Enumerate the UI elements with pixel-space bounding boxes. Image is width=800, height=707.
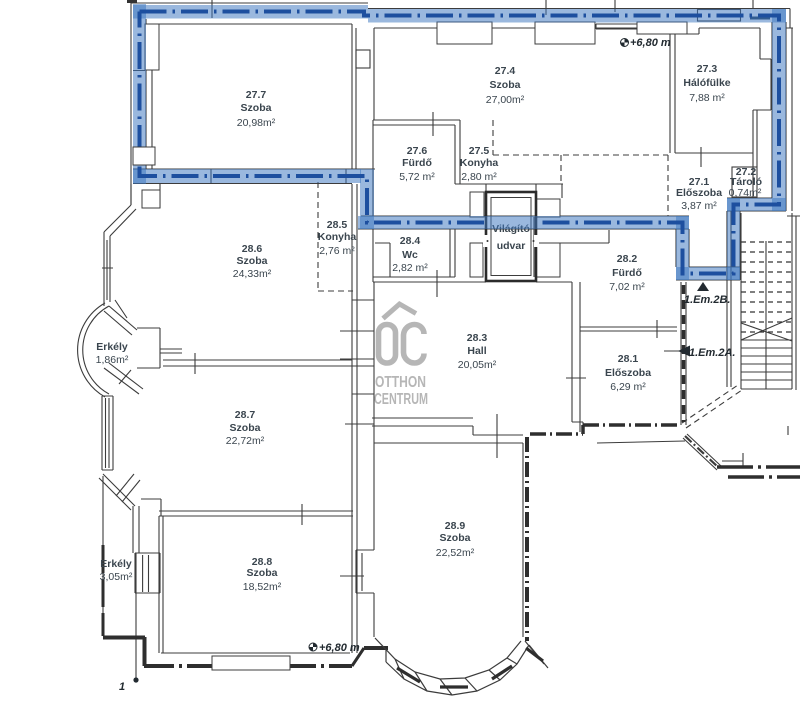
svg-text:Wc: Wc <box>402 249 418 261</box>
svg-text:2,76 m²: 2,76 m² <box>319 245 355 257</box>
svg-text:Fürdő: Fürdő <box>612 267 642 279</box>
svg-text:3,05m²: 3,05m² <box>100 571 133 583</box>
svg-text:1: 1 <box>119 681 125 693</box>
svg-text:Hálófülke: Hálófülke <box>683 77 730 89</box>
svg-text:27.7: 27.7 <box>246 89 267 101</box>
svg-text:27.3: 27.3 <box>697 63 718 75</box>
svg-text:OTTHON: OTTHON <box>375 374 426 391</box>
svg-text:6,29 m²: 6,29 m² <box>610 381 646 393</box>
svg-text:18,52m²: 18,52m² <box>243 581 282 593</box>
svg-text:Szoba: Szoba <box>237 255 268 267</box>
svg-text:24,33m²: 24,33m² <box>233 268 272 280</box>
svg-text:Szoba: Szoba <box>247 567 278 579</box>
svg-text:3,87 m²: 3,87 m² <box>681 200 717 212</box>
svg-text:Szoba: Szoba <box>490 79 521 91</box>
svg-text:CENTRUM: CENTRUM <box>374 391 428 408</box>
svg-text:27.5: 27.5 <box>469 145 490 157</box>
svg-text:Fürdő: Fürdő <box>402 157 432 169</box>
svg-text:1,86m²: 1,86m² <box>96 354 129 366</box>
svg-text:+6,80 m: +6,80 m <box>630 37 671 49</box>
svg-text:Erkély: Erkély <box>96 341 128 353</box>
svg-text:Előszoba: Előszoba <box>676 187 722 199</box>
svg-text:Konyha: Konyha <box>318 231 357 243</box>
svg-text:Előszoba: Előszoba <box>605 367 651 379</box>
svg-text:+6,80 m: +6,80 m <box>319 642 360 654</box>
svg-text:Szoba: Szoba <box>440 532 471 544</box>
svg-text:28.5: 28.5 <box>327 219 348 231</box>
svg-text:Hall: Hall <box>467 345 486 357</box>
svg-text:28.3: 28.3 <box>467 332 488 344</box>
svg-text:1.Em.2B.: 1.Em.2B. <box>684 294 730 306</box>
svg-text:5,72 m²: 5,72 m² <box>399 171 435 183</box>
svg-text:28.7: 28.7 <box>235 409 256 421</box>
svg-text:2,82 m²: 2,82 m² <box>392 262 428 274</box>
svg-text:Szoba: Szoba <box>241 102 272 114</box>
svg-text:27.6: 27.6 <box>407 145 428 157</box>
svg-text:28.4: 28.4 <box>400 235 421 247</box>
svg-text:7,88 m²: 7,88 m² <box>689 92 725 104</box>
svg-text:Konyha: Konyha <box>460 157 499 169</box>
svg-text:Szoba: Szoba <box>230 422 261 434</box>
svg-text:28.1: 28.1 <box>618 353 639 365</box>
svg-text:20,98m²: 20,98m² <box>237 117 276 129</box>
svg-text:28.6: 28.6 <box>242 243 263 255</box>
svg-text:22,72m²: 22,72m² <box>226 435 265 447</box>
svg-text:1.Em.2A.: 1.Em.2A. <box>689 347 735 359</box>
svg-text:27.4: 27.4 <box>495 65 516 77</box>
svg-text:udvar: udvar <box>497 240 526 252</box>
svg-text:22,52m²: 22,52m² <box>436 547 475 559</box>
svg-text:27,00m²: 27,00m² <box>486 94 525 106</box>
svg-text:7,02 m²: 7,02 m² <box>609 281 645 293</box>
svg-text:20,05m²: 20,05m² <box>458 359 497 371</box>
svg-text:Erkély: Erkély <box>100 558 132 570</box>
svg-text:28.2: 28.2 <box>617 253 638 265</box>
svg-text:28.9: 28.9 <box>445 520 466 532</box>
svg-text:0,74m²: 0,74m² <box>729 187 762 199</box>
svg-text:2,80 m²: 2,80 m² <box>461 171 497 183</box>
